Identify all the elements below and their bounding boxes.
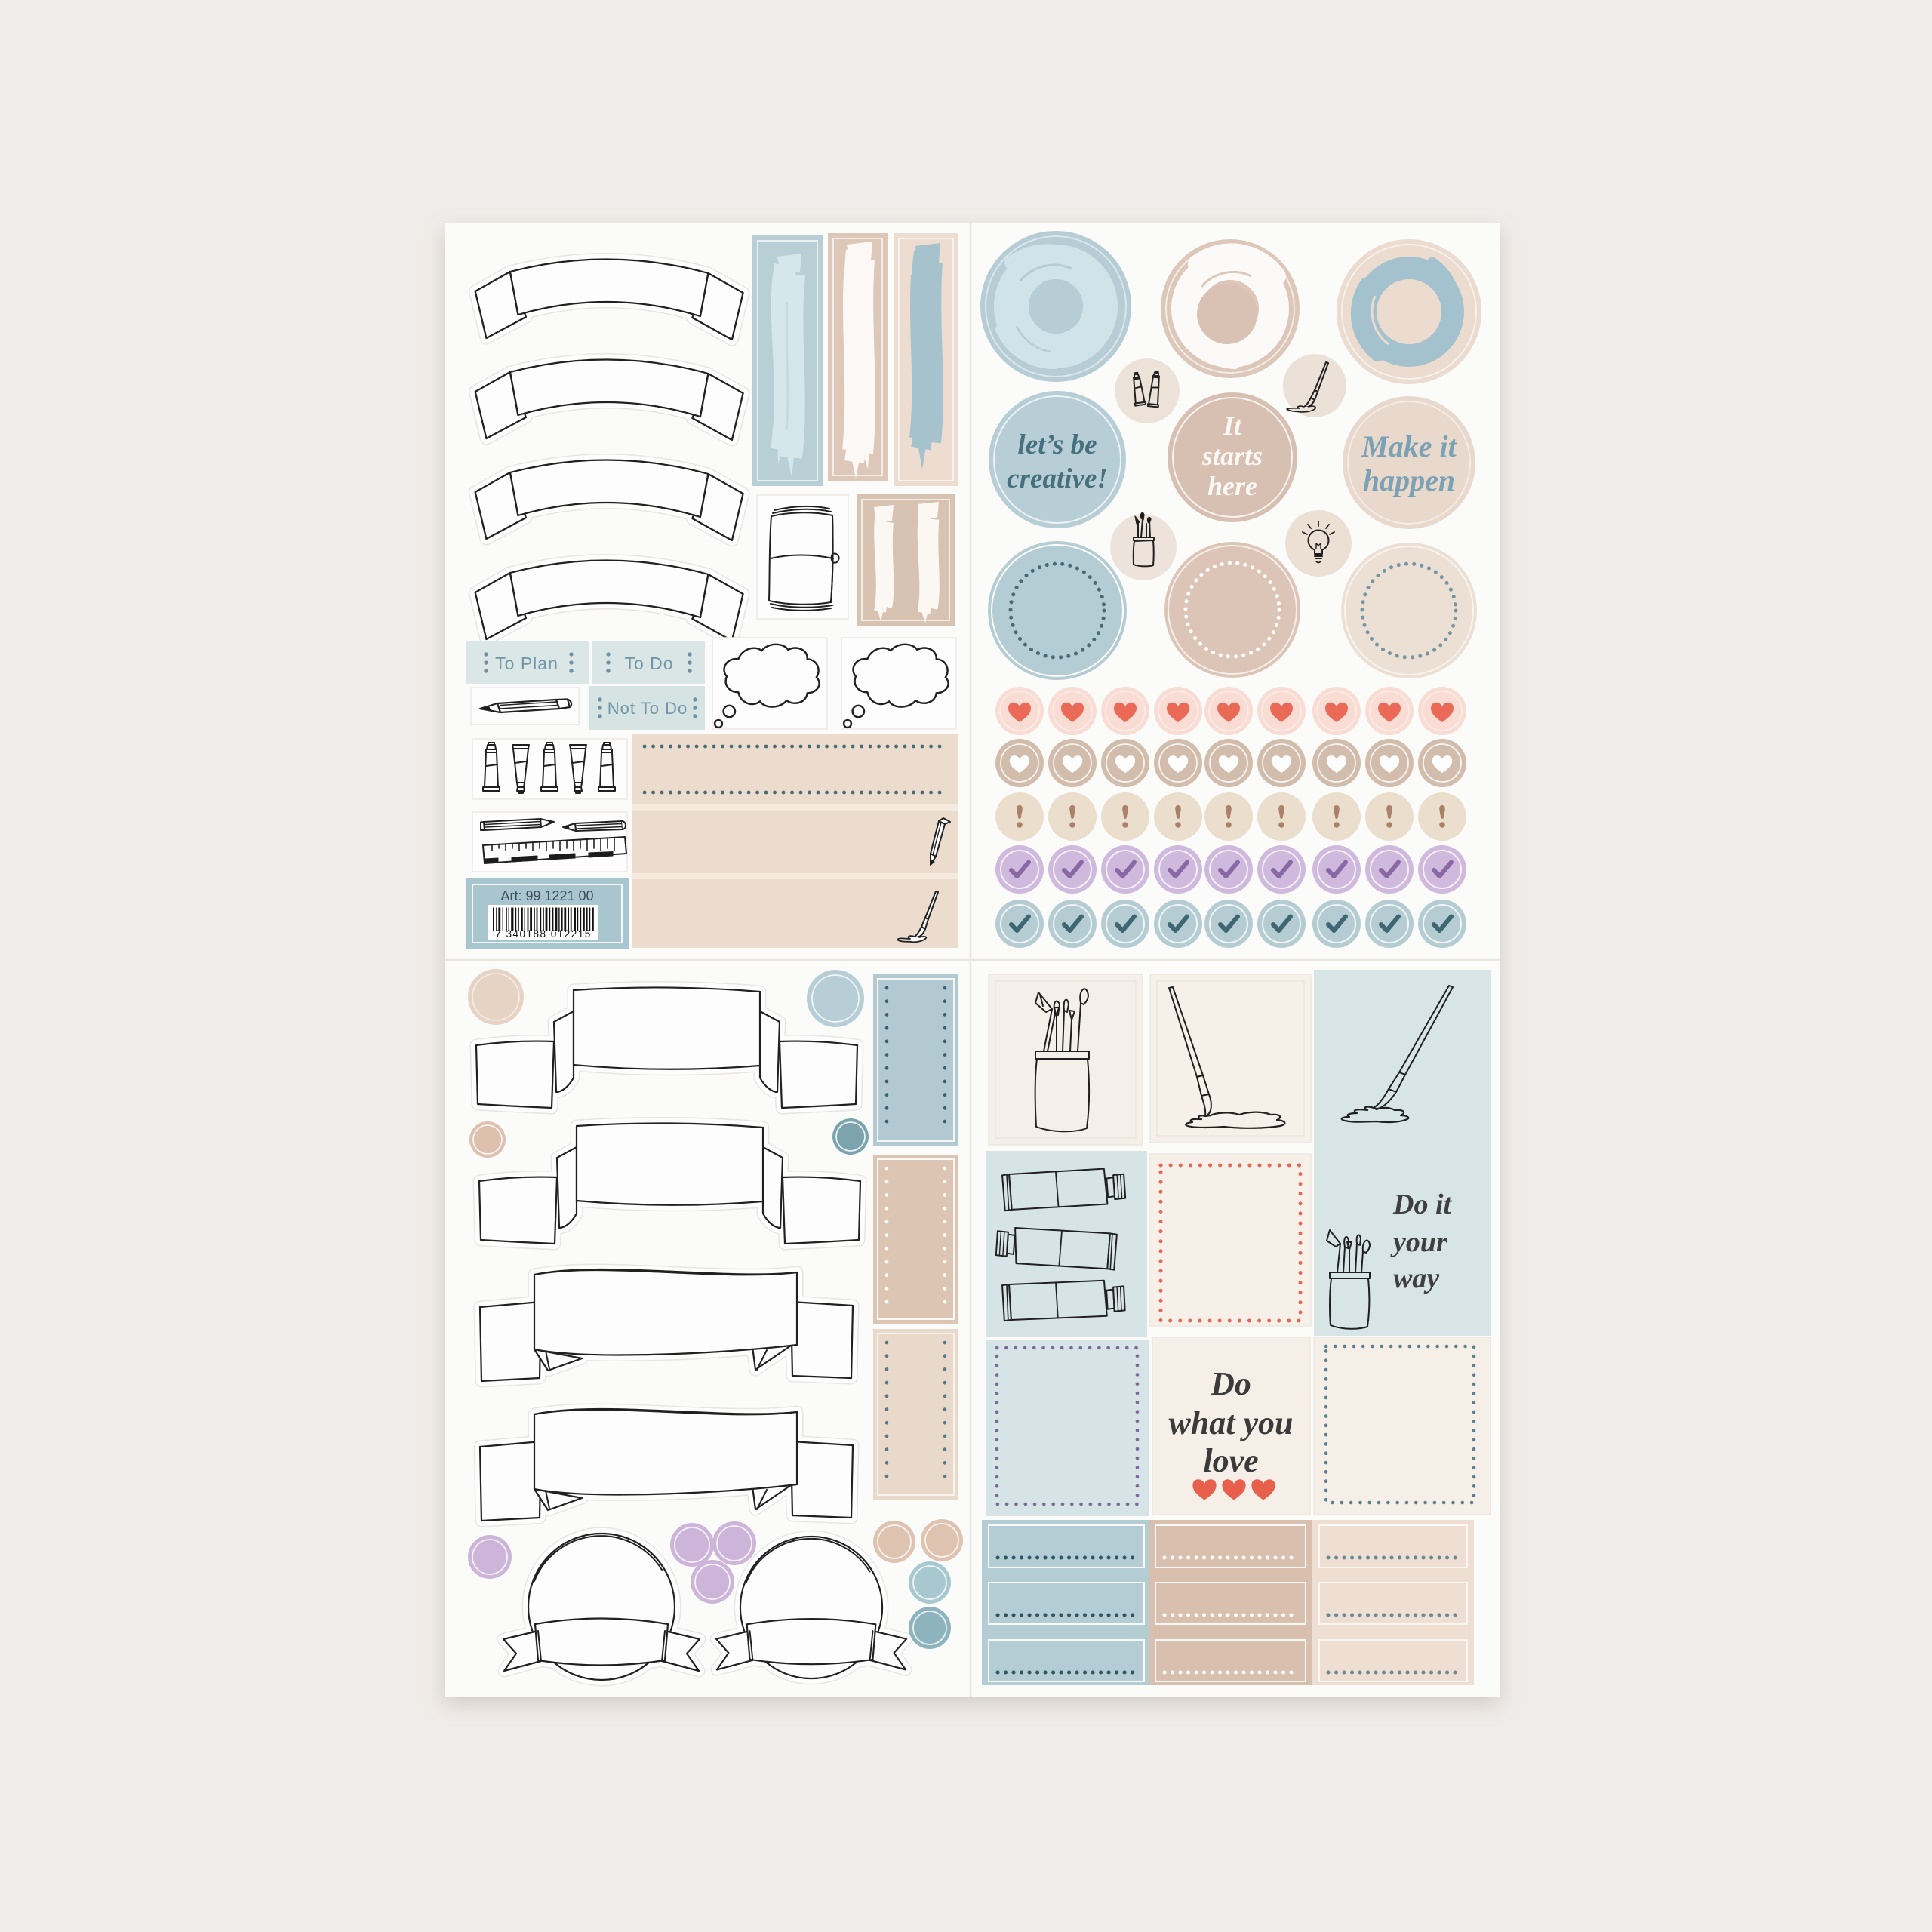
svg-text:happen: happen (1363, 463, 1455, 497)
svg-text:way: way (1393, 1263, 1439, 1294)
svg-text:creative!: creative! (1007, 463, 1108, 494)
svg-text:Not To Do: Not To Do (608, 699, 688, 718)
svg-text:Make it: Make it (1361, 429, 1457, 463)
svg-text:Do it: Do it (1392, 1189, 1453, 1220)
svg-text:7 340188 012215: 7 340188 012215 (495, 928, 592, 940)
svg-text:To Do: To Do (624, 654, 673, 673)
svg-text:To Plan: To Plan (495, 654, 558, 673)
svg-text:starts: starts (1201, 441, 1263, 471)
svg-text:Do: Do (1210, 1365, 1251, 1402)
svg-text:what you: what you (1168, 1404, 1293, 1441)
svg-text:It: It (1223, 411, 1242, 441)
svg-text:your: your (1390, 1226, 1448, 1258)
svg-text:let’s be: let’s be (1017, 429, 1097, 460)
svg-text:Art: 99 1221 00: Art: 99 1221 00 (500, 888, 593, 903)
svg-text:love: love (1203, 1442, 1258, 1479)
svg-text:here: here (1207, 471, 1257, 501)
